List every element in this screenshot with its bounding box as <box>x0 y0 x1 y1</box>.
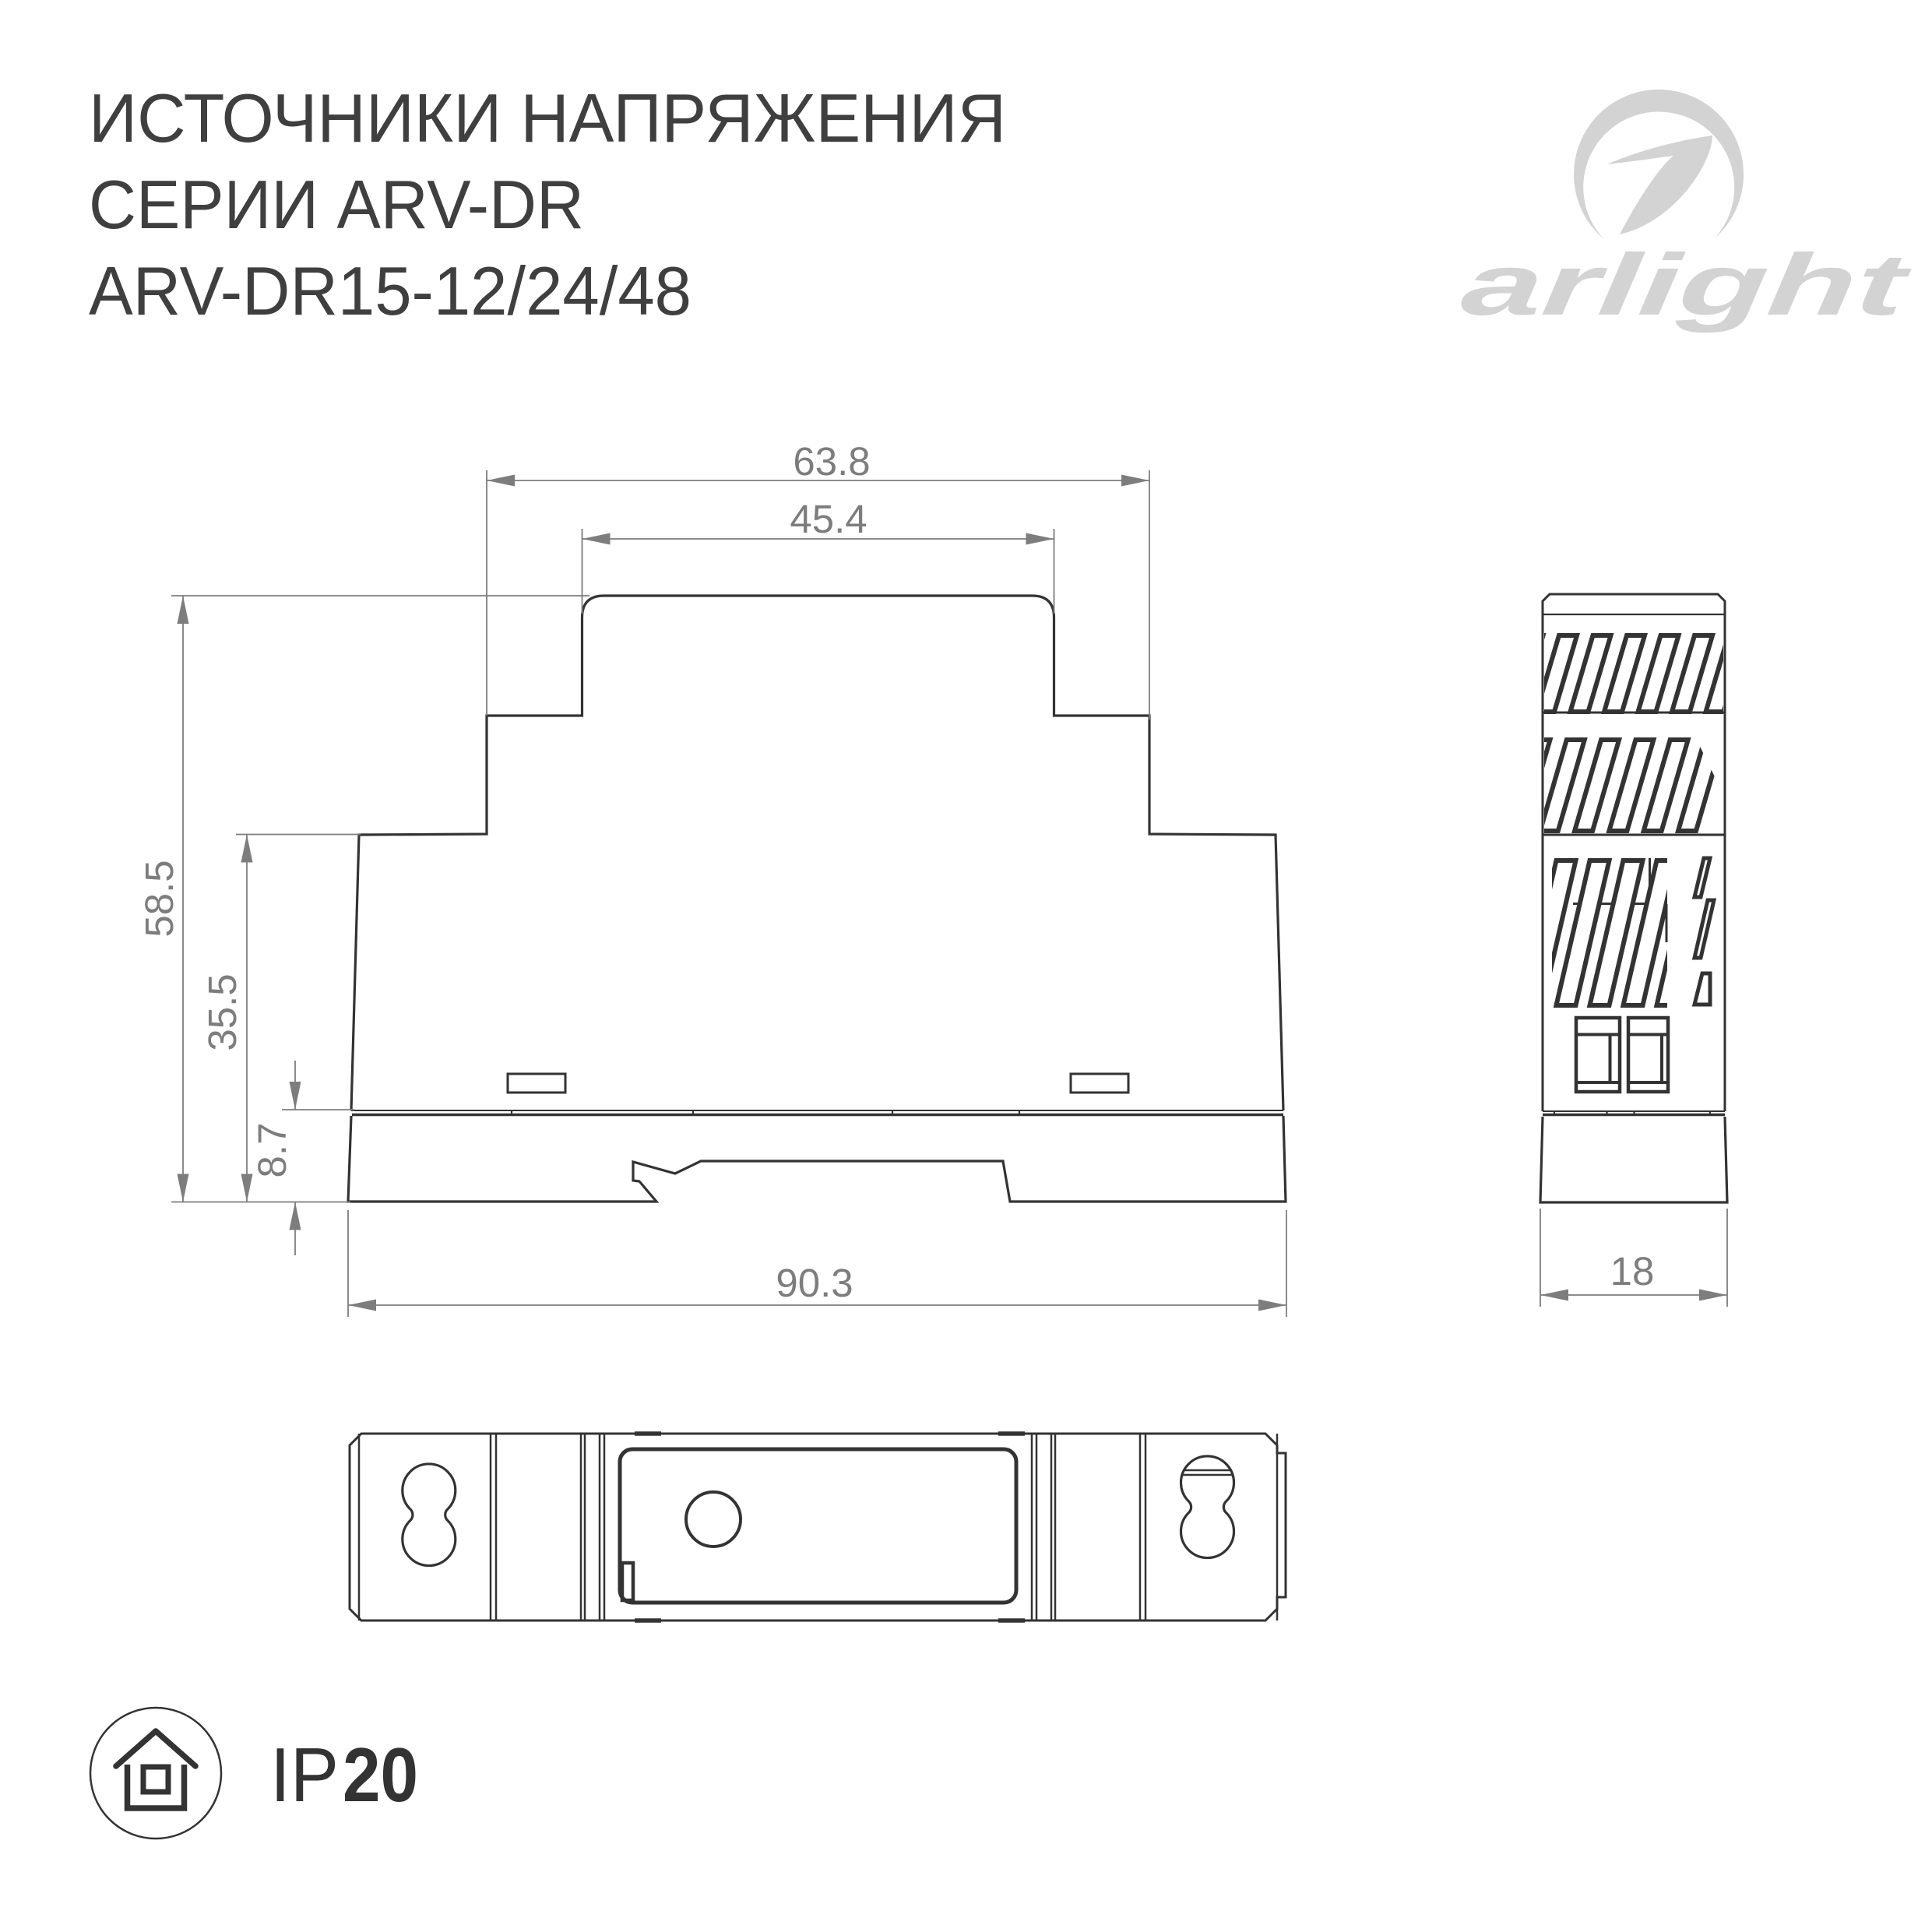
svg-text:IP: IP <box>270 1732 339 1818</box>
svg-text:35.5: 35.5 <box>200 973 245 1050</box>
svg-text:18: 18 <box>1610 1249 1655 1293</box>
svg-text:20: 20 <box>343 1732 418 1818</box>
svg-text:ARV-DR15-12/24/48: ARV-DR15-12/24/48 <box>89 252 692 329</box>
svg-text:90.3: 90.3 <box>776 1261 853 1305</box>
svg-text:58.5: 58.5 <box>137 860 181 937</box>
svg-text:СЕРИИ ARV-DR: СЕРИИ ARV-DR <box>89 166 584 243</box>
svg-text:8.7: 8.7 <box>250 1123 294 1178</box>
svg-text:63.8: 63.8 <box>793 439 870 484</box>
svg-text:ИСТОЧНИКИ НАПРЯЖЕНИЯ: ИСТОЧНИКИ НАПРЯЖЕНИЯ <box>89 79 1006 157</box>
svg-text:arlight: arlight <box>1457 236 1915 333</box>
svg-text:45.4: 45.4 <box>790 497 867 541</box>
